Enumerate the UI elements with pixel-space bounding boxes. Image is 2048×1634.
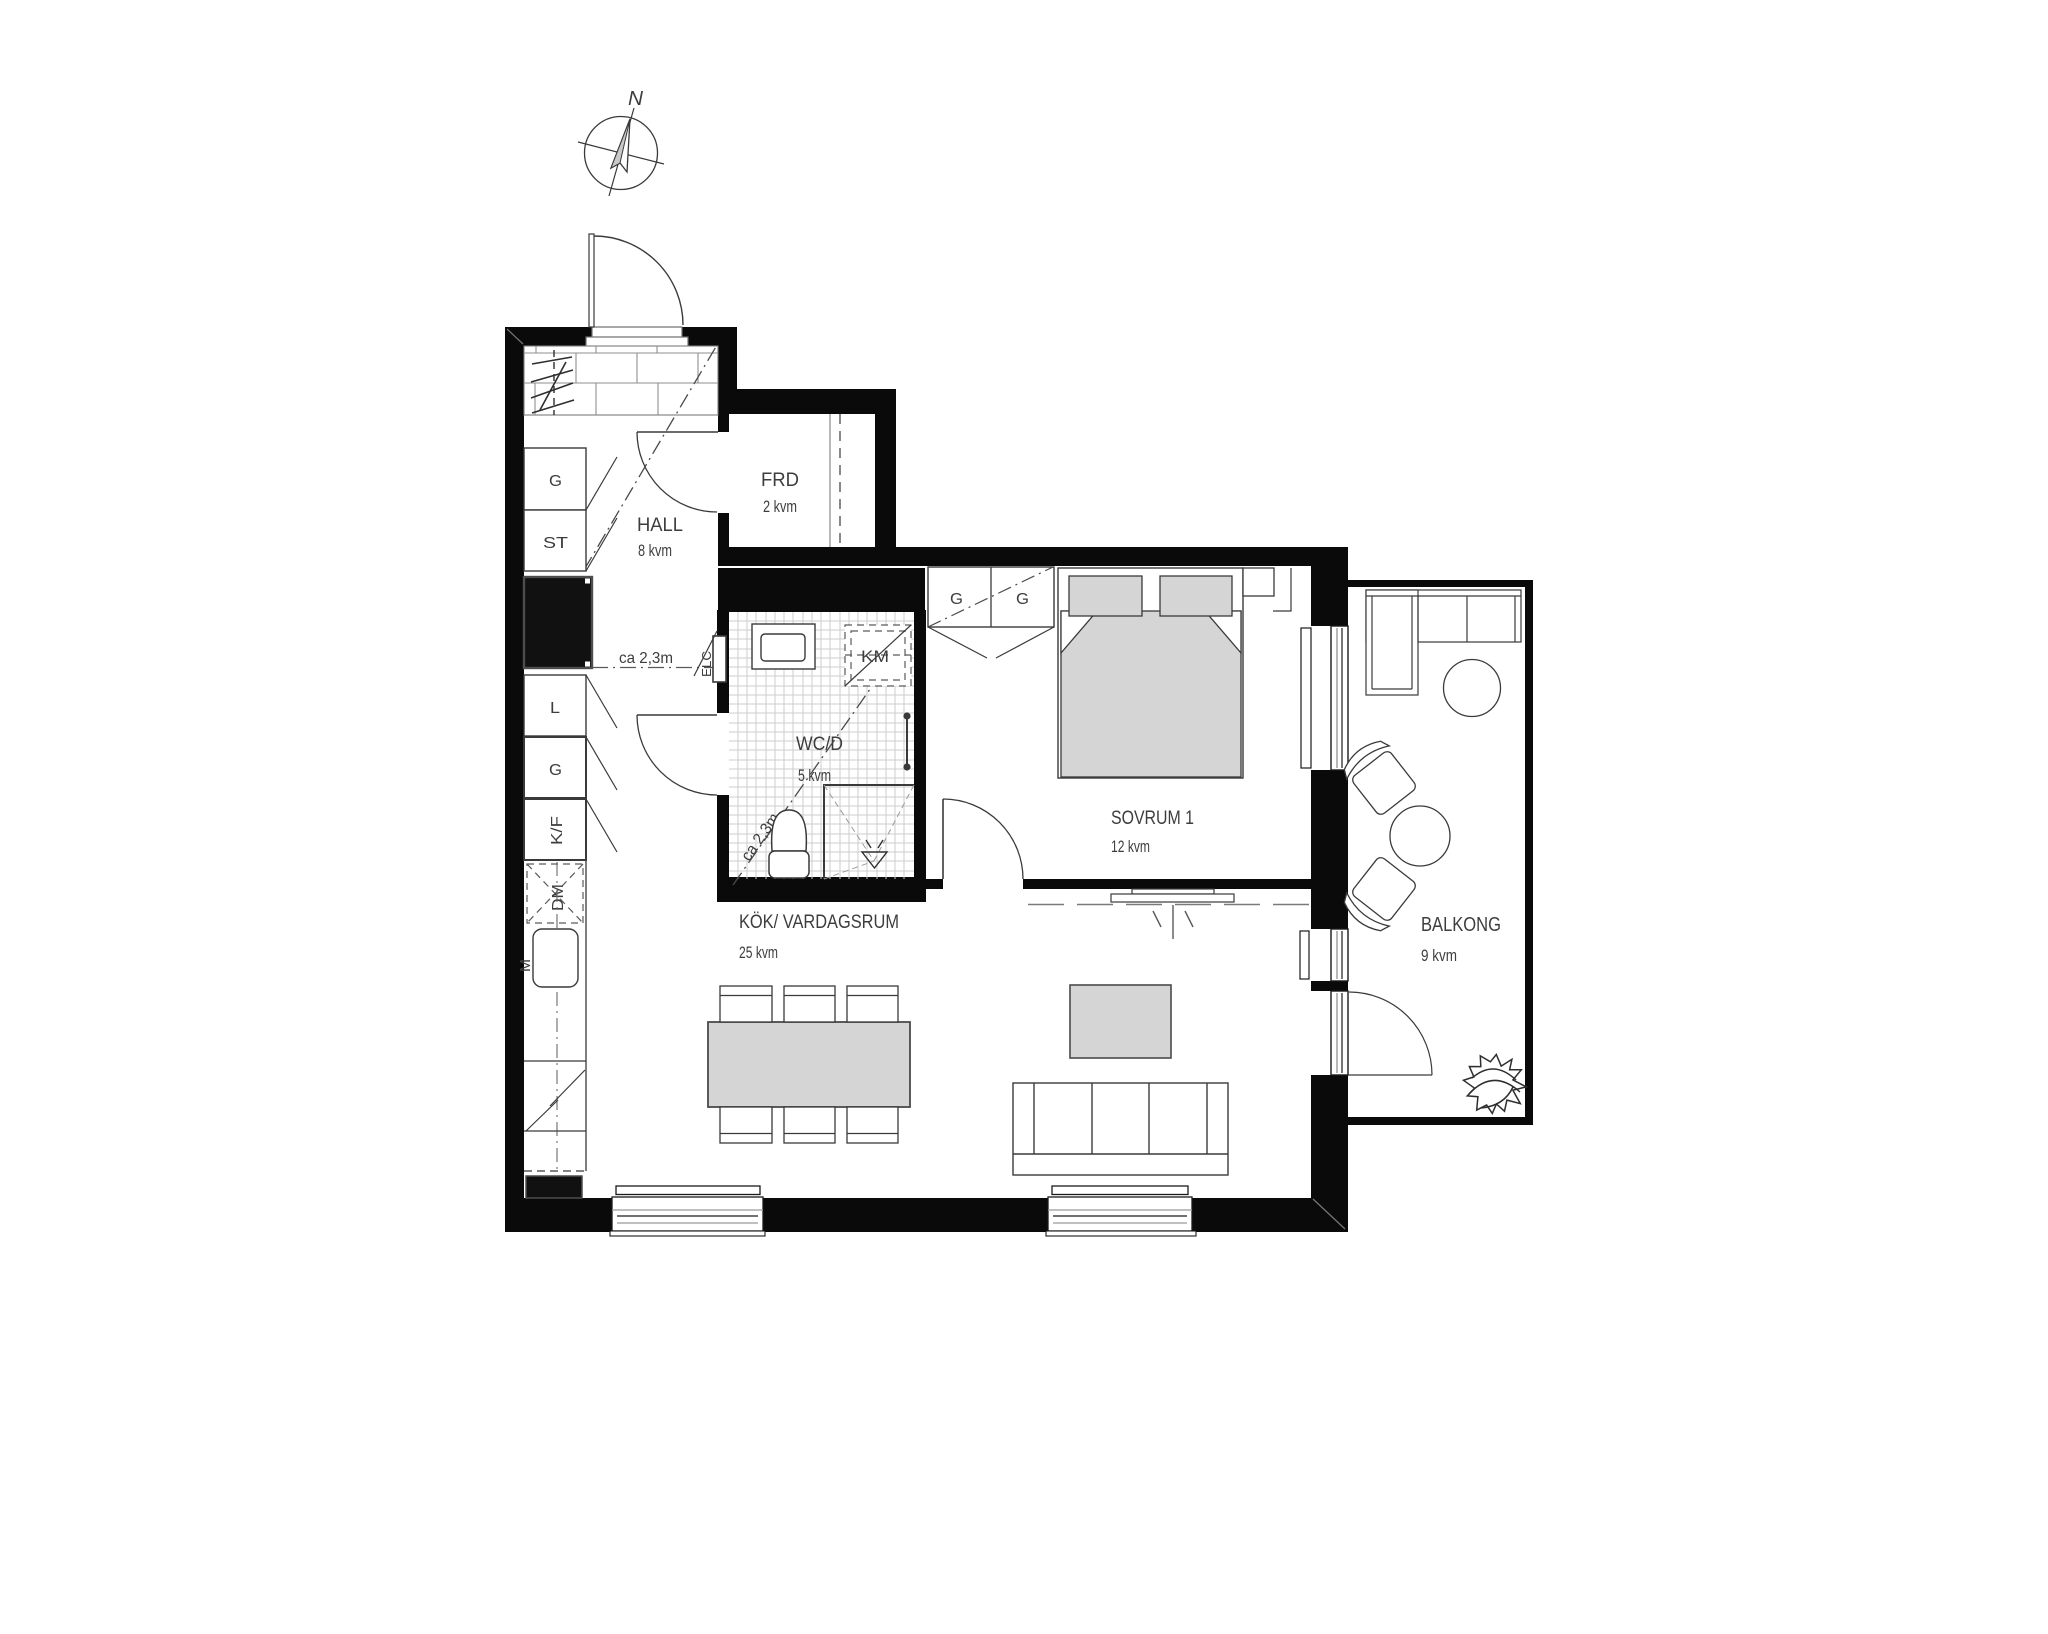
svg-text:HALL: HALL (637, 515, 683, 536)
svg-text:9 kvm: 9 kvm (1421, 946, 1457, 965)
svg-text:G: G (549, 473, 562, 490)
svg-text:KM: KM (861, 647, 889, 666)
svg-text:K/F: K/F (549, 816, 566, 845)
svg-text:M: M (517, 959, 534, 972)
svg-text:8 kvm: 8 kvm (638, 542, 672, 560)
svg-text:N: N (628, 88, 644, 110)
svg-text:ST: ST (543, 535, 568, 552)
svg-text:2 kvm: 2 kvm (763, 498, 797, 516)
svg-text:DM: DM (550, 884, 567, 911)
svg-text:L: L (550, 700, 560, 717)
svg-text:FRD: FRD (761, 470, 799, 491)
svg-text:G: G (1016, 591, 1029, 608)
svg-text:G: G (549, 762, 562, 779)
svg-text:BALKONG: BALKONG (1421, 914, 1501, 936)
svg-text:12 kvm: 12 kvm (1111, 838, 1150, 856)
svg-text:WC/D: WC/D (796, 734, 843, 755)
svg-text:25 kvm: 25 kvm (739, 944, 778, 962)
svg-text:5 kvm: 5 kvm (798, 767, 831, 785)
svg-text:SOVRUM 1: SOVRUM 1 (1111, 808, 1194, 829)
svg-text:ca 2,3m: ca 2,3m (619, 650, 673, 667)
svg-text:KÖK/ VARDAGSRUM: KÖK/ VARDAGSRUM (739, 912, 899, 933)
svg-text:G: G (950, 591, 963, 608)
svg-text:ELC: ELC (699, 651, 714, 677)
